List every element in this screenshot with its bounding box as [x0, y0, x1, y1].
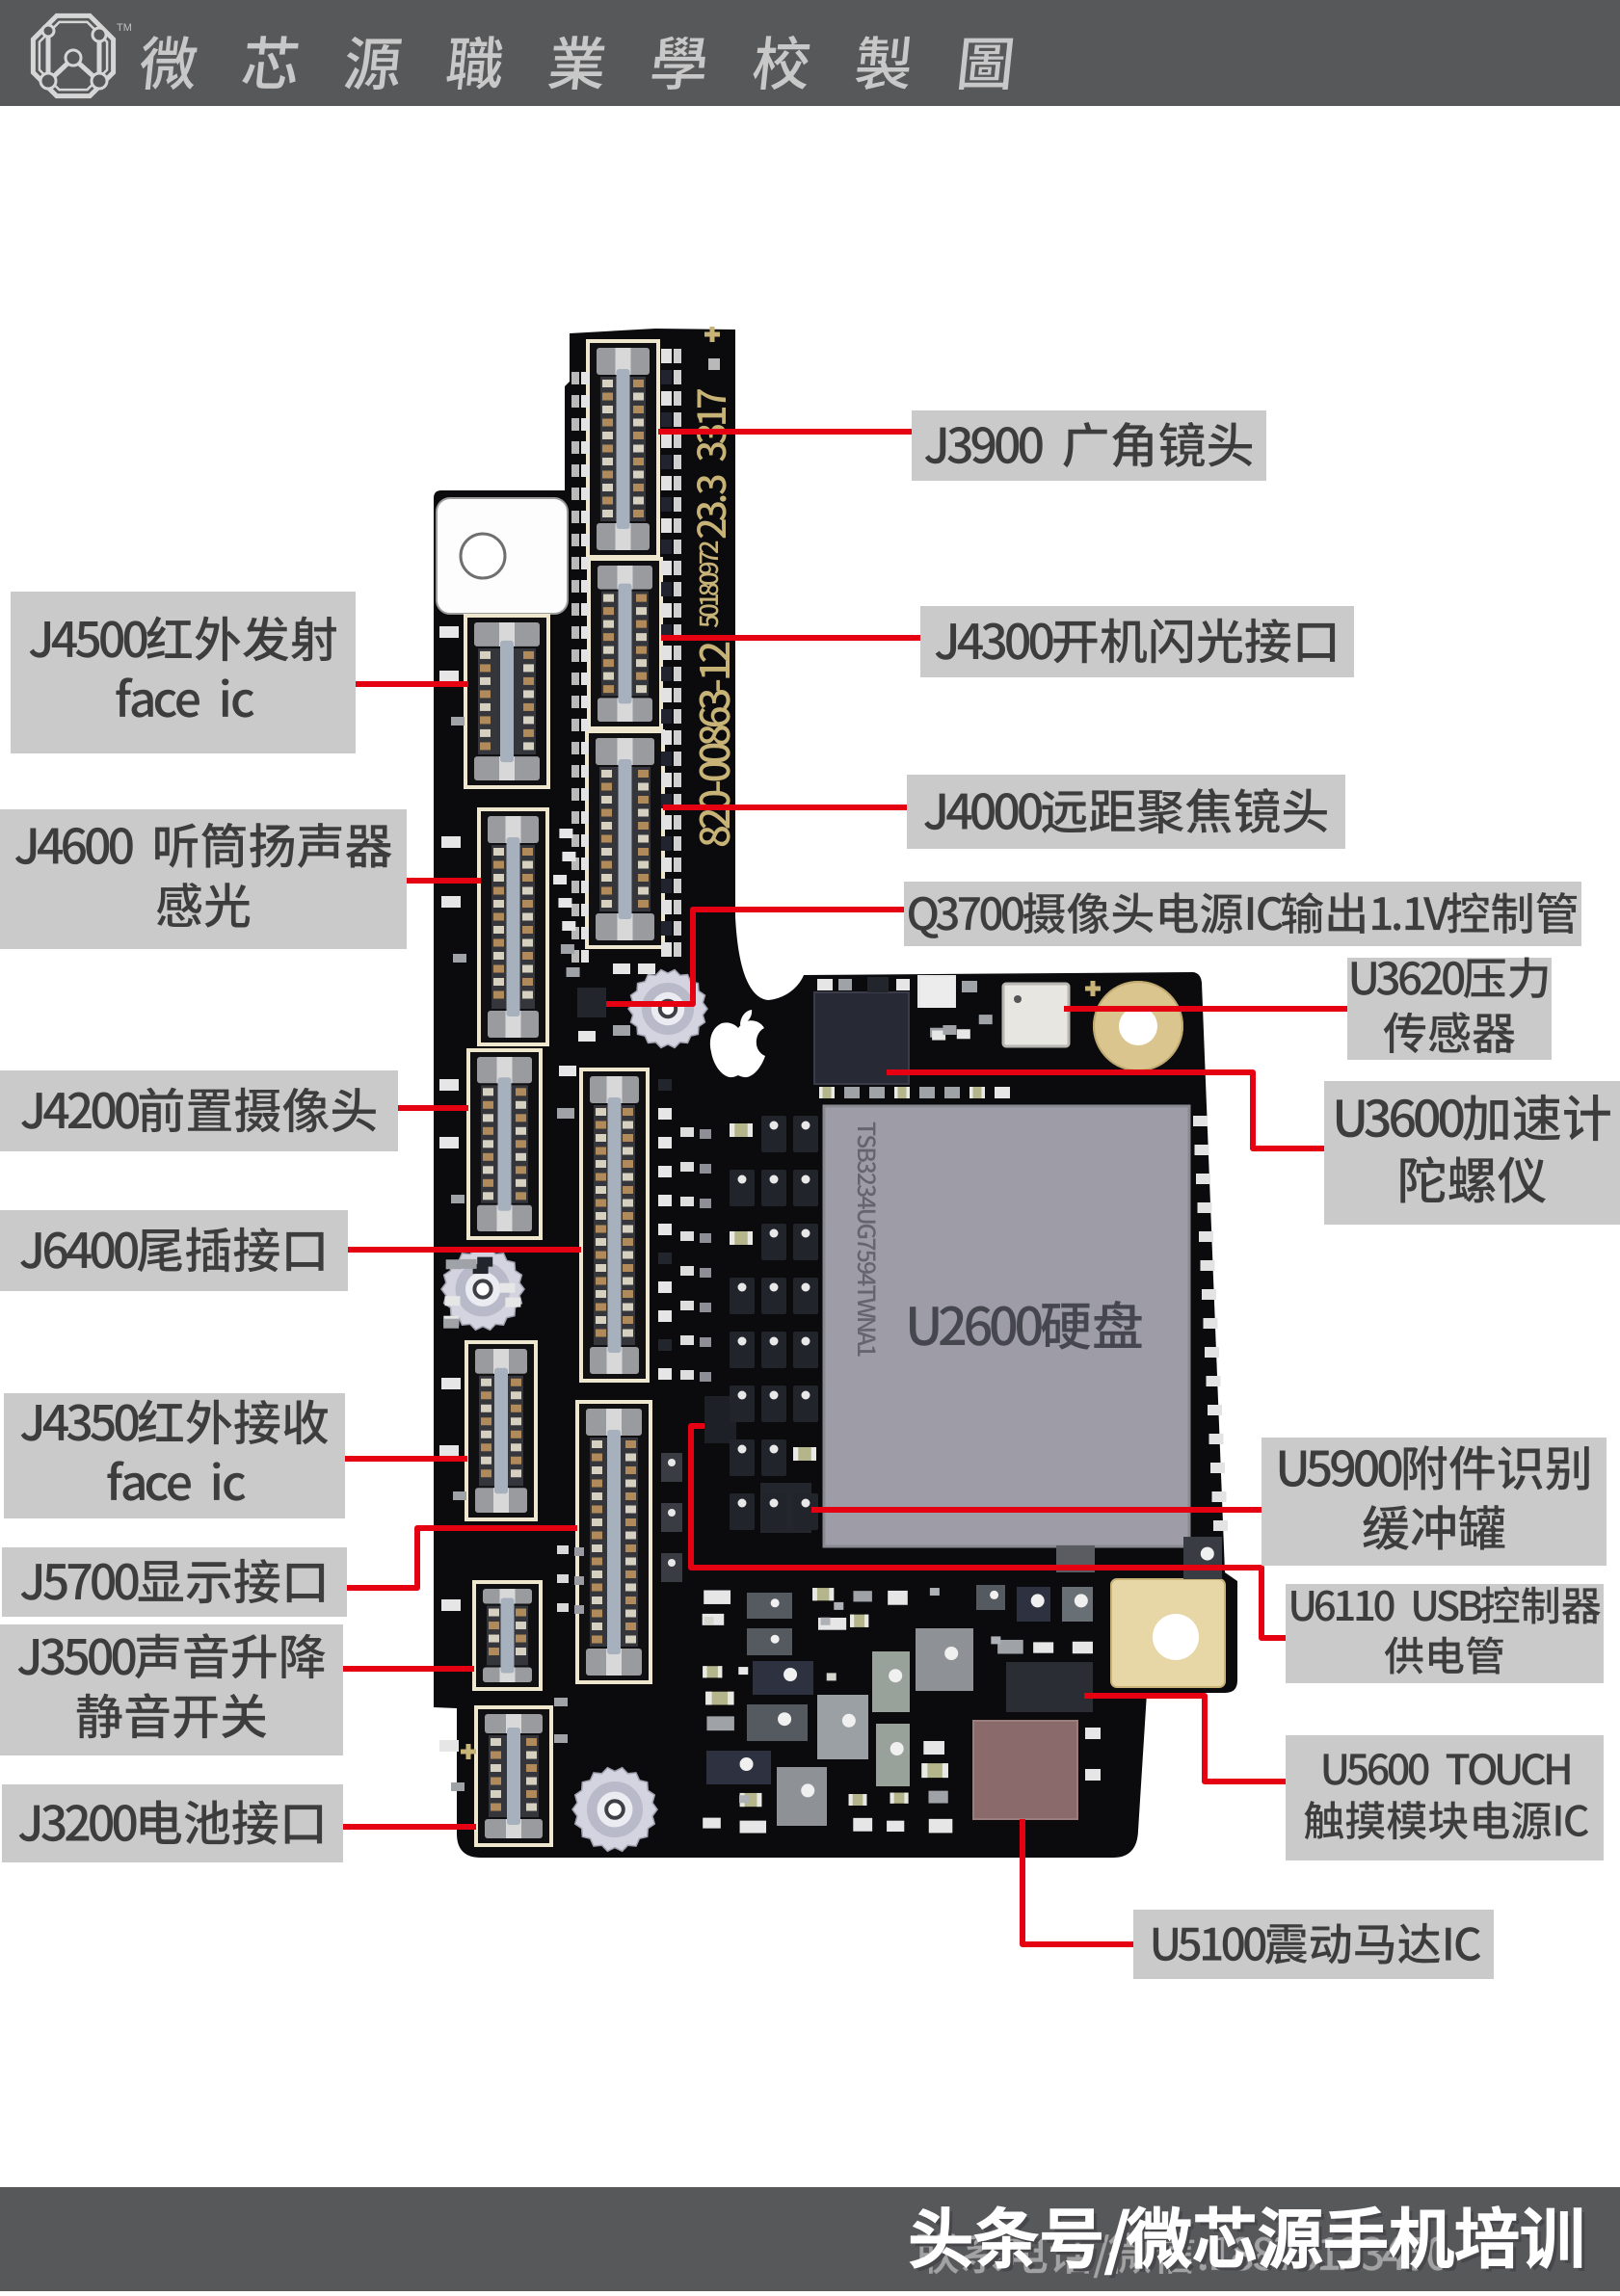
svg-text:TM: TM [117, 22, 132, 34]
